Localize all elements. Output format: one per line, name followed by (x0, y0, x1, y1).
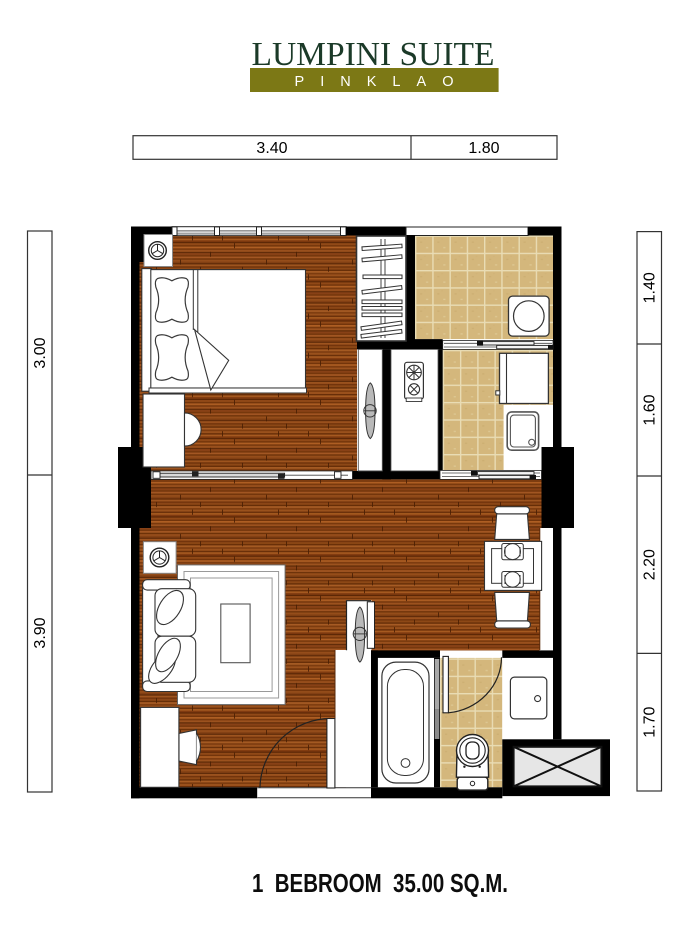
svg-text:1.80: 1.80 (468, 140, 499, 157)
svg-text:1.40: 1.40 (642, 272, 659, 303)
svg-text:3.00: 3.00 (32, 337, 49, 368)
svg-text:3.90: 3.90 (32, 617, 49, 648)
svg-text:LUMPINI SUITE: LUMPINI SUITE (252, 36, 495, 73)
svg-text:1.70: 1.70 (642, 707, 659, 738)
svg-text:2.20: 2.20 (642, 549, 659, 580)
svg-text:3.40: 3.40 (256, 140, 287, 157)
svg-text:1 BEBROOM 35.00 SQ.M.: 1 BEBROOM 35.00 SQ.M. (252, 870, 508, 898)
svg-text:1.60: 1.60 (642, 394, 659, 425)
